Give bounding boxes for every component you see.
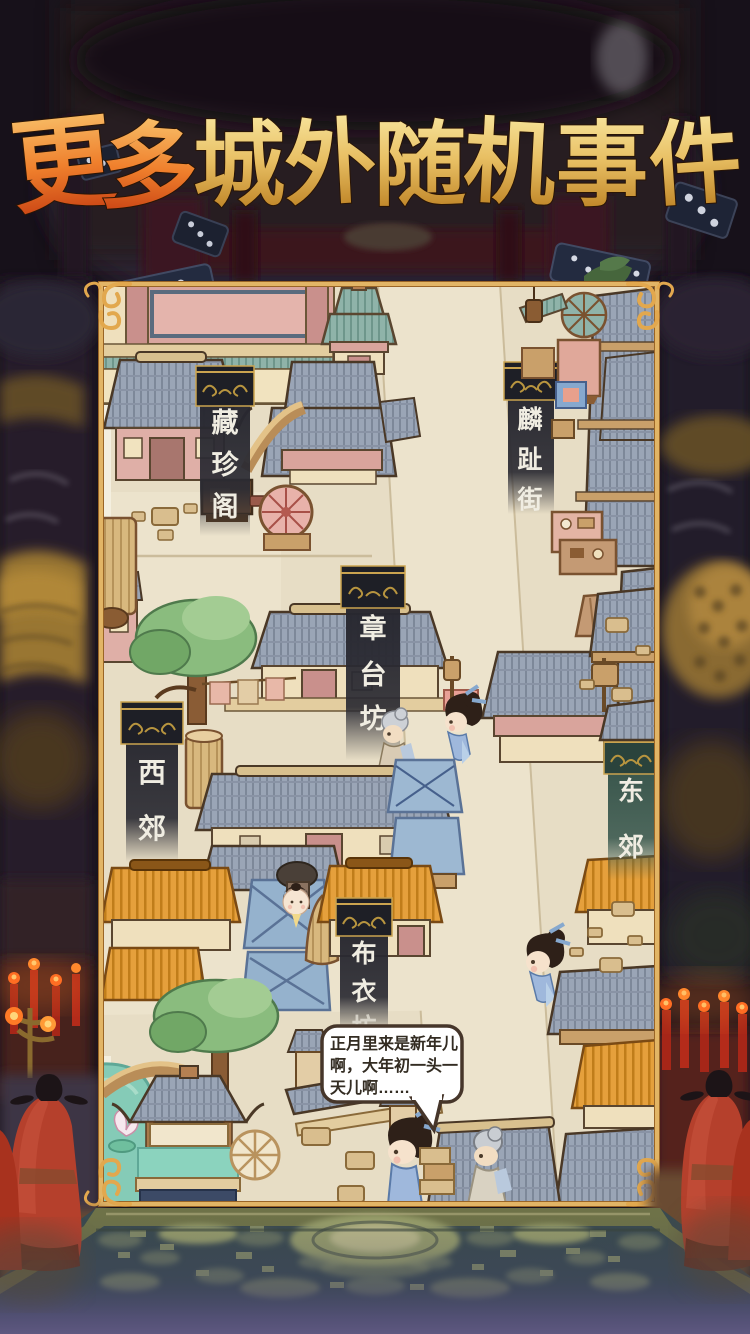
svg-text:郊: 郊 [138,813,166,845]
svg-text:珍: 珍 [212,450,240,480]
svg-text:外: 外 [282,111,379,218]
svg-text:藏: 藏 [212,408,239,438]
svg-text:趾: 趾 [517,446,542,474]
svg-text:东: 东 [618,776,644,806]
svg-text:郊: 郊 [618,832,644,862]
svg-text:天儿啊……: 天儿啊…… [330,1079,410,1097]
svg-text:街: 街 [516,485,542,514]
svg-text:件: 件 [646,110,745,218]
svg-text:台: 台 [360,659,387,690]
svg-text:阁: 阁 [212,491,239,522]
svg-text:布: 布 [351,939,376,968]
svg-text:正月里来是新年儿: 正月里来是新年儿 [330,1034,458,1053]
svg-text:西: 西 [138,758,166,789]
svg-text:随: 随 [374,115,466,217]
svg-text:机: 机 [461,111,558,218]
svg-text:多: 多 [97,113,201,227]
svg-text:章: 章 [360,613,387,644]
svg-text:麟: 麟 [517,405,542,434]
svg-text:啊，大年初一头一: 啊，大年初一头一 [330,1056,458,1075]
svg-text:衣: 衣 [351,977,376,1006]
svg-text:事: 事 [556,115,648,217]
svg-text:城: 城 [193,115,285,217]
